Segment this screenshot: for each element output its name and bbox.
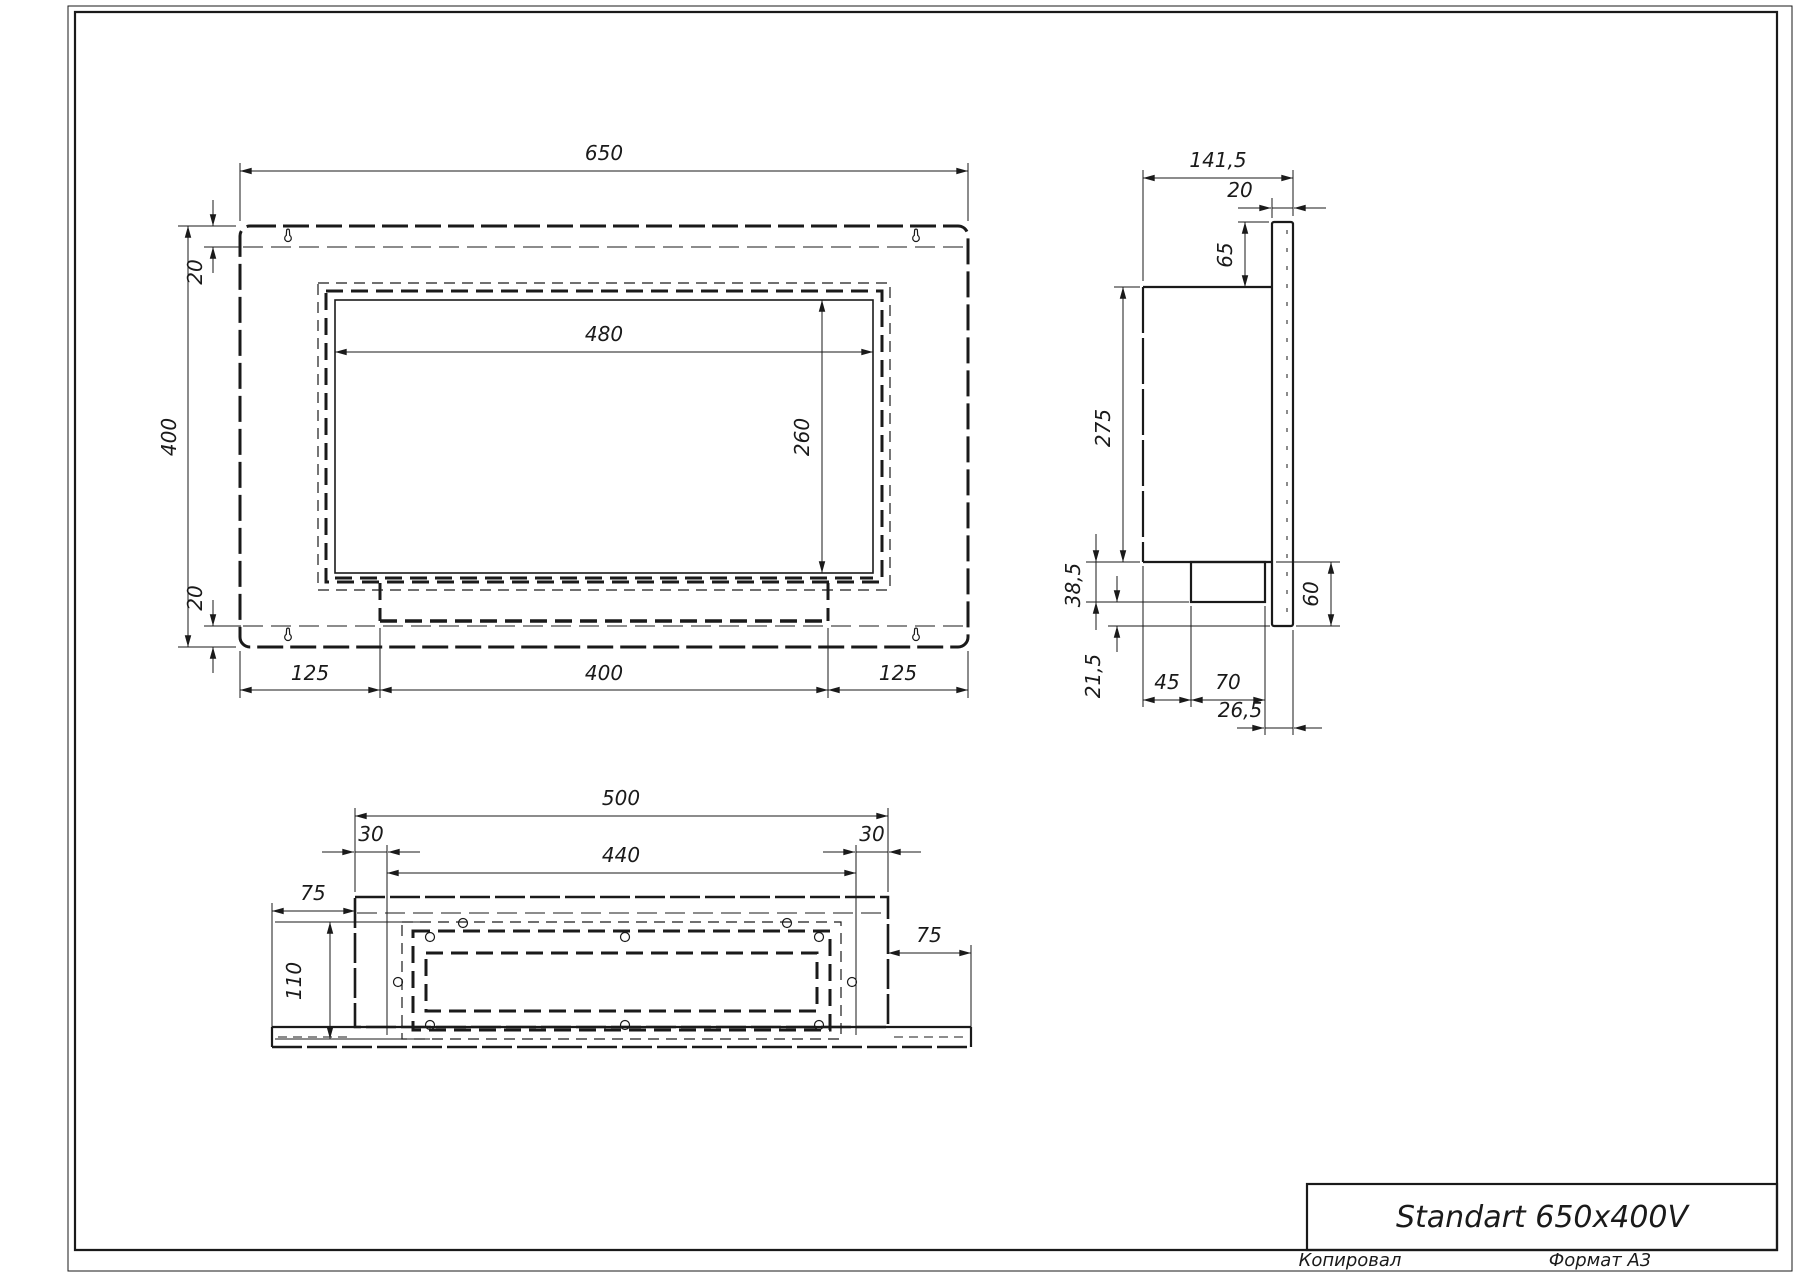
dim-body-height: 275 — [1091, 287, 1140, 562]
burner-tray-outline — [426, 953, 817, 1011]
burner-hidden-lines — [380, 583, 828, 621]
side-view: 141,5 20 65 275 38,5 — [1061, 148, 1340, 735]
dim-label: 480 — [585, 322, 623, 346]
dim-flange-drop: 60 — [1276, 562, 1340, 626]
dim-label: 125 — [879, 661, 917, 685]
dim-opening-depth: 110 — [275, 922, 430, 1039]
side-flange — [1272, 222, 1293, 626]
dim-wing-left: 75 — [272, 881, 355, 1032]
keyhole-icon — [285, 628, 292, 640]
model-name: Standart 650x400V — [1396, 1200, 1691, 1235]
dim-label: 440 — [602, 843, 640, 867]
technical-drawing: 650 400 20 20 480 — [0, 0, 1800, 1273]
dim-label: 20 — [183, 259, 207, 284]
dim-label: 65 — [1213, 242, 1237, 267]
screw-hole — [815, 933, 824, 942]
dim-label: 500 — [602, 786, 640, 810]
dim-label: 125 — [291, 661, 329, 685]
dim-front-width: 650 — [240, 141, 968, 221]
copied-label: Копировал — [1299, 1250, 1402, 1271]
dim-bottom-body-width: 500 — [355, 786, 888, 892]
bottom-body-outline — [355, 897, 888, 1027]
side-burner-box — [1191, 562, 1265, 602]
dim-label: 141,5 — [1189, 148, 1246, 172]
sheet-frame — [68, 6, 1792, 1271]
title-block: Standart 650x400V Копировал Формат А3 — [1299, 1184, 1777, 1271]
dim-frame-thickness: 20 — [1227, 178, 1326, 218]
dim-label: 30 — [859, 822, 884, 846]
dim-inset-right: 30 — [823, 822, 921, 852]
front-outline — [240, 226, 968, 647]
dim-label: 26,5 — [1218, 698, 1263, 722]
opening-hidden-outline — [413, 931, 830, 1030]
dim-opening-height: 260 — [790, 300, 822, 573]
dim-front-height: 400 — [157, 226, 236, 647]
dim-label: 400 — [585, 661, 623, 685]
keyhole-icon — [913, 628, 920, 640]
dim-inset-left: 30 — [322, 822, 420, 852]
dim-label: 110 — [282, 962, 306, 1000]
screw-hole — [815, 1021, 824, 1030]
format-label: Формат А3 — [1549, 1250, 1652, 1271]
dim-opening-width: 480 — [335, 322, 873, 352]
dim-label: 45 — [1154, 670, 1179, 694]
screw-holes — [394, 919, 857, 1030]
dim-burner-height: 38,5 — [1061, 534, 1189, 630]
dim-front-bottom-row: 125 400 125 — [240, 628, 968, 698]
dim-front-offset-top: 20 — [183, 200, 241, 285]
front-view: 650 400 20 20 480 — [157, 141, 968, 698]
dim-label: 70 — [1215, 670, 1240, 694]
screw-hole — [621, 933, 630, 942]
dim-label: 21,5 — [1081, 654, 1105, 699]
dim-label: 20 — [183, 585, 207, 610]
drawing-sheet: 650 400 20 20 480 — [0, 0, 1800, 1273]
dim-label: 30 — [358, 822, 383, 846]
screw-hole — [426, 933, 435, 942]
bottom-view: 500 30 440 30 75 — [272, 786, 971, 1047]
screw-hole — [848, 978, 857, 987]
keyhole-icon — [913, 229, 920, 241]
dim-wing-right: 75 — [888, 923, 971, 1032]
dim-label: 75 — [916, 923, 941, 947]
dim-label: 275 — [1091, 409, 1115, 447]
screw-hole — [783, 919, 792, 928]
keyhole-icon — [285, 229, 292, 241]
dim-flange-above: 65 — [1213, 222, 1269, 287]
dim-label: 260 — [790, 418, 814, 456]
dim-label: 20 — [1227, 178, 1252, 202]
dim-label: 60 — [1299, 581, 1323, 606]
screw-hole — [394, 978, 403, 987]
dim-front-offset-bottom: 20 — [183, 585, 241, 673]
dim-label: 75 — [300, 881, 325, 905]
dim-label: 400 — [157, 418, 181, 456]
screw-hole — [459, 919, 468, 928]
dim-label: 650 — [585, 141, 623, 165]
dim-label: 38,5 — [1061, 563, 1085, 608]
